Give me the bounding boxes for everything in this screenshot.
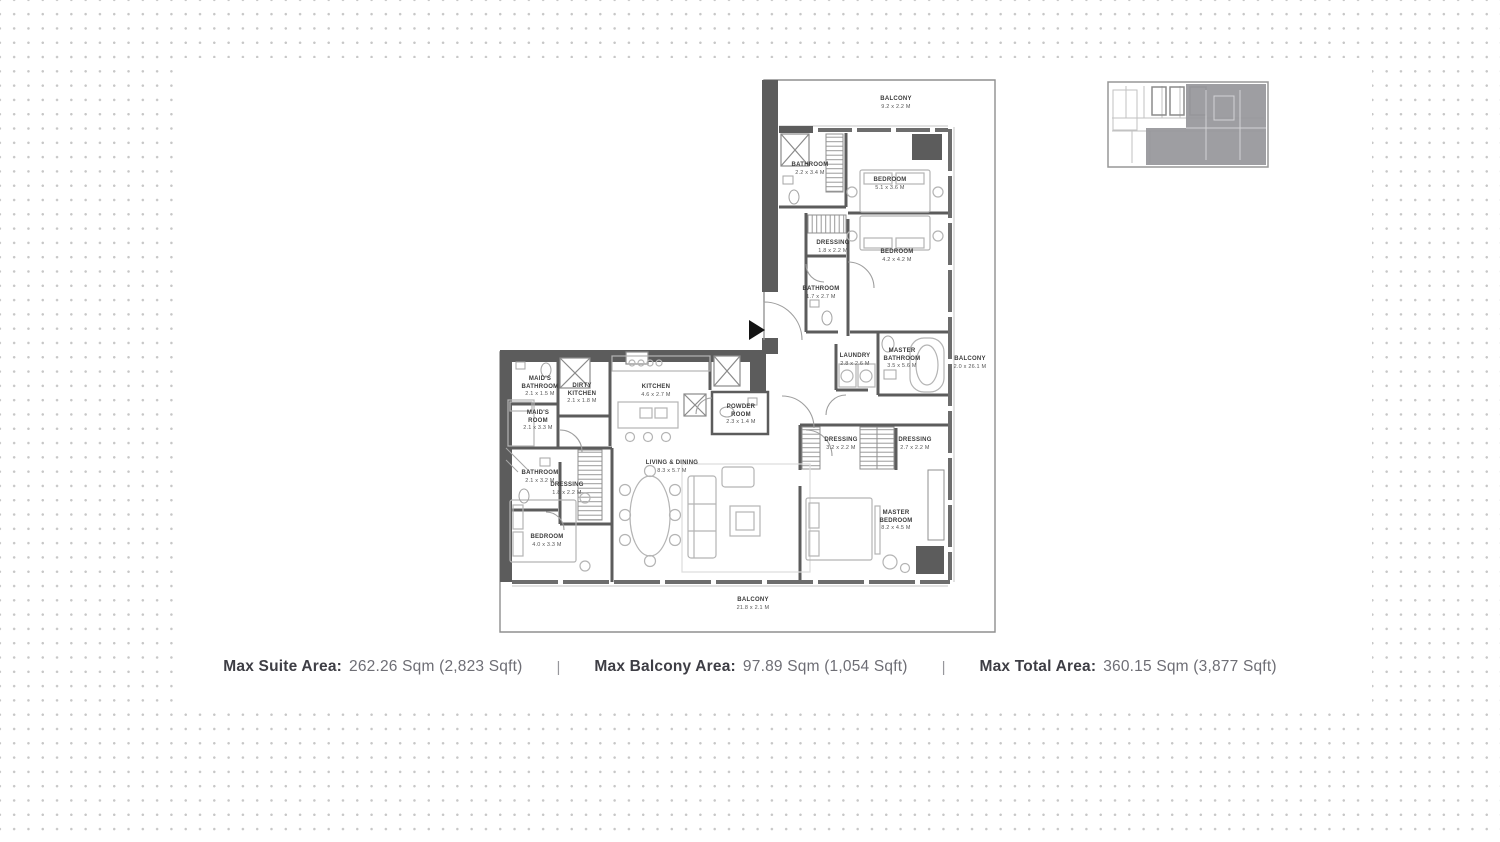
max-balcony-area-value: 97.89 Sqm (1,054 Sqft) (743, 658, 908, 675)
page: { "colors": { "wall": "#5c5c5c", "thin_l… (0, 0, 1500, 842)
max-suite-area-label: Max Suite Area: (223, 658, 342, 675)
room-label-master-bathroom: MASTER BATHROOM 3.5 x 5.6 M (881, 348, 923, 370)
room-label-dressing-master-1: DRESSING 3.2 x 2.2 M (824, 437, 857, 451)
room-label-living-dining: LIVING & DINING 8.3 x 5.7 M (646, 460, 698, 474)
room-label-master-bedroom: MASTER BEDROOM 8.2 x 4.5 M (876, 510, 916, 532)
room-label-kitchen: KITCHEN 4.6 x 2.7 M (641, 384, 670, 398)
entrance-arrow-icon (749, 320, 765, 340)
room-label-laundry: LAUNDRY 2.8 x 2.6 M (840, 353, 871, 367)
room-label-bathroom-2: BATHROOM 1.7 x 2.7 M (803, 286, 840, 300)
max-total-area-label: Max Total Area: (980, 658, 1097, 675)
room-label-balcony-right: BALCONY 2.0 x 26.1 M (954, 356, 987, 370)
room-label-maids-bathroom: MAID'S BATHROOM 2.1 x 1.5 M (519, 376, 561, 398)
room-label-bathroom-top: BATHROOM 2.2 x 3.4 M (792, 162, 829, 176)
max-total-area: Max Total Area:360.15 Sqm (3,877 Sqft) (980, 658, 1277, 676)
room-label-dressing-master-2: DRESSING 2.7 x 2.2 M (898, 437, 931, 451)
stats-separator: | (557, 659, 561, 676)
max-suite-area-value: 262.26 Sqm (2,823 Sqft) (349, 658, 522, 675)
room-label-dirty-kitchen: DIRTY KITCHEN 2.1 x 1.8 M (565, 383, 599, 405)
max-total-area-value: 360.15 Sqm (3,877 Sqft) (1103, 658, 1276, 675)
max-suite-area: Max Suite Area:262.26 Sqm (2,823 Sqft) (223, 658, 522, 676)
max-balcony-area-label: Max Balcony Area: (594, 658, 736, 675)
stats-separator: | (942, 659, 946, 676)
area-stats-bar: Max Suite Area:262.26 Sqm (2,823 Sqft) |… (0, 658, 1500, 676)
max-balcony-area: Max Balcony Area:97.89 Sqm (1,054 Sqft) (594, 658, 907, 676)
room-label-dressing-upper: DRESSING 1.8 x 2.2 M (816, 240, 849, 254)
room-label-balcony-top: BALCONY 9.2 x 2.2 M (880, 96, 911, 110)
room-label-powder-room: POWDER ROOM 2.3 x 1.4 M (724, 404, 758, 426)
room-label-dressing-1: DRESSING 1.8 x 2.2 M (550, 482, 583, 496)
room-label-bedroom-top: BEDROOM 5.1 x 3.6 M (873, 177, 906, 191)
room-label-bedroom-2: BEDROOM 4.2 x 4.2 M (880, 249, 913, 263)
key-plan (1108, 82, 1268, 167)
room-label-maids-room: MAID'S ROOM 2.1 x 3.3 M (523, 410, 553, 432)
room-label-bedroom-1: BEDROOM 4.0 x 3.3 M (530, 534, 563, 548)
room-label-balcony-bottom: BALCONY 21.8 x 2.1 M (737, 597, 770, 611)
